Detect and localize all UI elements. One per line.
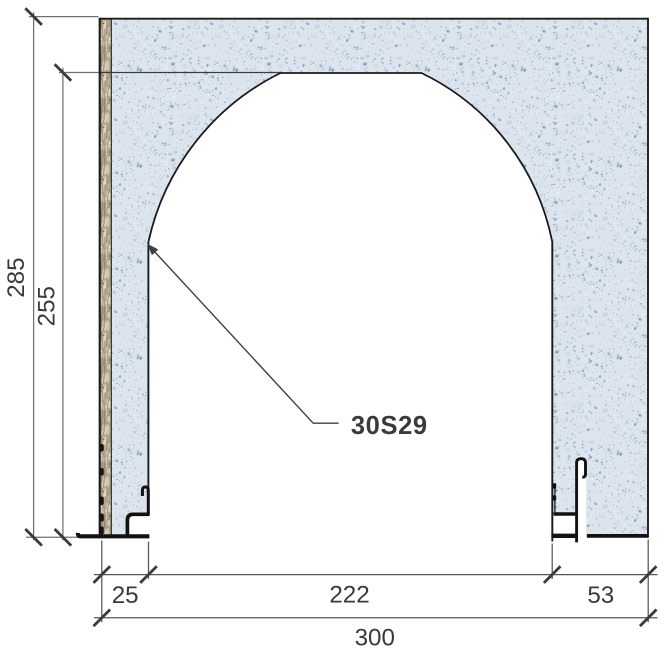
svg-text:285: 285 [3,257,30,297]
svg-text:222: 222 [329,582,369,609]
svg-text:300: 300 [355,624,395,649]
svg-text:255: 255 [34,286,61,326]
svg-text:53: 53 [587,582,614,609]
svg-text:30S29: 30S29 [351,412,428,440]
svg-text:25: 25 [112,582,139,609]
